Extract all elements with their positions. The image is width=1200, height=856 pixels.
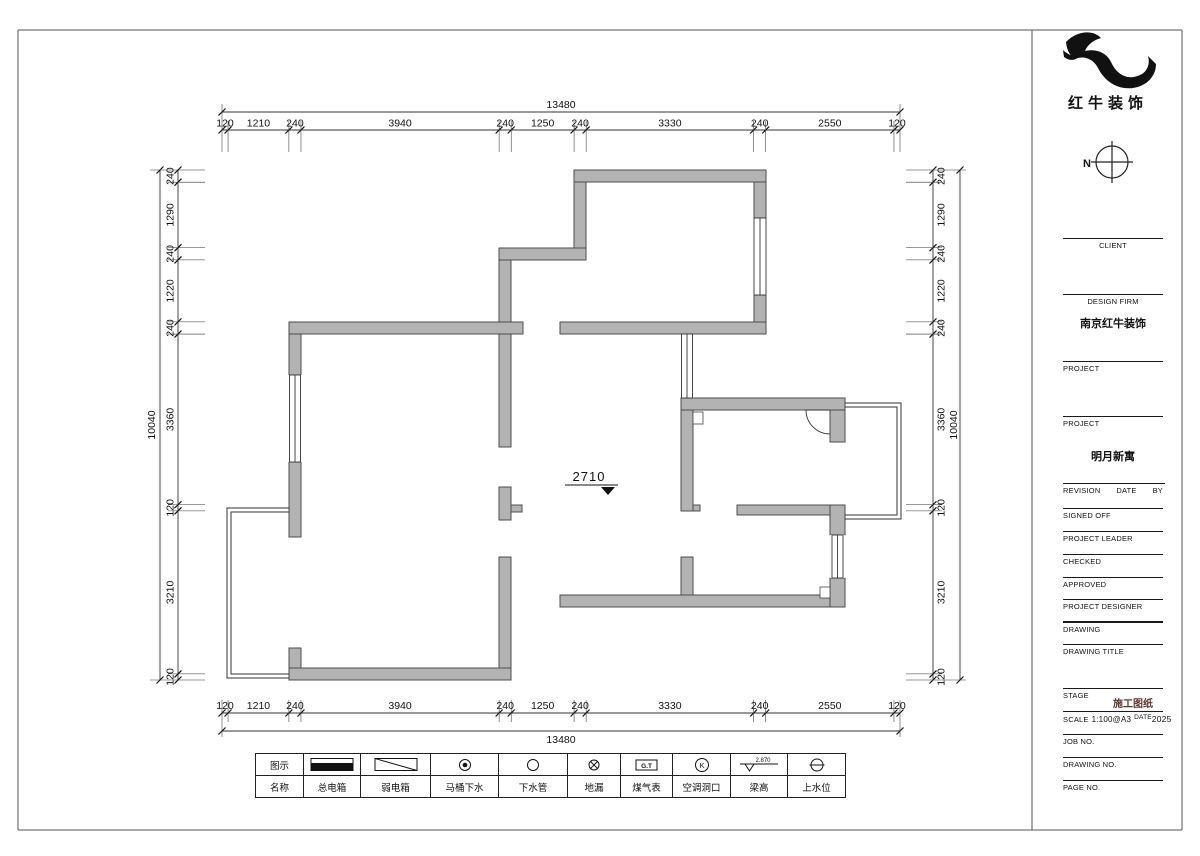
dim-total-left: 10040 [146,410,158,439]
wall-segment [289,322,523,334]
wall-segment [693,505,700,511]
titleblock-row-drawing: DRAWING [1063,621,1163,634]
dim-label: 240 [571,118,589,130]
scale-date-value: 2025 [1152,714,1172,724]
client-label: CLIENT [1099,241,1127,250]
svg-text:2.870: 2.870 [755,758,771,764]
dim-label: 120 [216,700,234,712]
balcony-window [227,508,289,678]
dim-label: 120 [165,668,177,686]
legend-item-name: 总电箱 [304,776,361,798]
stage-value: 施工图纸 [1063,695,1163,710]
dim-label: 240 [751,700,769,712]
legend-item-name: 马桶下水 [431,776,499,798]
wall-segment [560,595,845,607]
project-label-1: PROJECT [1063,364,1099,373]
dim-total-right: 10040 [948,410,960,439]
scale-label: SCALE [1063,715,1089,724]
north-label: N [1083,158,1091,170]
window [830,535,845,578]
drain-pipe-icon [525,757,541,773]
dim-label: 120 [216,118,234,130]
legend-row1-label: 图示 [256,754,304,776]
dim-label: 2550 [818,700,842,712]
scale-date-label: DATE [1134,714,1152,721]
wall-segment [511,505,522,512]
legend-item-name: 煤气表 [621,776,673,798]
dim-label: 120 [936,499,948,517]
dim-label: 240 [936,245,948,263]
ceiling-height-label: 2710 [573,469,606,484]
dim-label: 240 [165,319,177,337]
dim-label: 1220 [165,279,177,303]
project-designer-label: PROJECT DESIGNER [1063,602,1142,611]
job-no-label: JOB NO. [1063,737,1094,746]
legend-item-name: 上水位 [788,776,846,798]
wall-segment [499,487,511,520]
wall-segment [289,668,511,680]
dim-label: 240 [165,167,177,185]
dim-label: 240 [165,245,177,263]
approved-label: APPROVED [1063,580,1106,589]
floor-drain-icon [586,757,602,773]
wall-segment [830,410,845,442]
titleblock-row-scale: SCALE1:100@A3DATE2025 [1063,711,1163,724]
main-electric-box-icon [309,757,355,772]
wall-segment [754,182,766,218]
dim-label: 240 [751,118,769,130]
dim-label: 3360 [165,408,177,432]
dim-label: 120 [936,668,948,686]
design-firm-value: 南京红牛装饰 [1063,315,1163,331]
project-label-2: PROJECT [1063,419,1099,428]
titleblock-row-revision: REVISION DATE BY [1063,483,1165,495]
dim-label: 120 [888,700,906,712]
dim-label: 3330 [658,700,682,712]
titleblock-row-project-designer: PROJECT DESIGNER [1063,599,1163,611]
water-supply-icon [807,757,827,773]
balcony-window [845,403,901,519]
titleblock-row-signed-off: SIGNED OFF [1063,508,1163,520]
wall-segment [681,398,845,410]
dim-label: 1210 [247,700,271,712]
legend-item-name: 弱电箱 [361,776,431,798]
titleblock-row-client: CLIENT [1063,238,1163,250]
door-swing [806,410,830,434]
floor-plan-canvas: 红牛装饰 N [0,0,1200,856]
titleblock-row-drawing-no: DRAWING NO. [1063,757,1163,769]
legend-item-name: 梁高 [731,776,788,798]
ceiling-height-marker: 2710 [565,469,618,495]
dim-label: 1290 [936,203,948,227]
dim-label: 240 [936,319,948,337]
wall-segment [499,334,511,447]
dim-label: 3210 [936,581,948,605]
project-leader-label: PROJECT LEADER [1063,534,1133,543]
beam-height-icon: 2.870 [737,755,781,774]
titleblock-row-drawing-title: DRAWING TITLE [1063,644,1163,656]
wall-segment [830,505,845,535]
toilet-drain-icon [457,757,473,773]
ac-hole-icon: K [693,756,711,774]
brand-logo: 红牛装饰 [1063,32,1156,112]
sheet-frame [18,30,1182,830]
dim-label: 240 [936,167,948,185]
titleblock-row-design-firm: DESIGN FIRM [1063,294,1163,306]
wall-segment [560,322,766,334]
legend-item-name: 下水管 [499,776,568,798]
titleblock-row-project1: PROJECT [1063,361,1163,373]
wall-segment [499,557,511,668]
dim-label: 120 [888,118,906,130]
titleblock-row-checked: CHECKED [1063,554,1163,566]
drawing-no-label: DRAWING NO. [1063,760,1117,769]
brand-name: 红牛装饰 [1068,94,1148,112]
wall-segment [681,557,693,595]
wall-segment [681,410,693,511]
wall-segment [499,248,586,260]
dim-label: 3210 [165,581,177,605]
dim-label: 2550 [818,118,842,130]
gas-meter-icon: G.T [634,758,660,772]
dim-label: 1290 [165,203,177,227]
dim-total-top: 13480 [546,99,575,111]
scale-value: 1:100@A3 [1092,715,1132,724]
dim-label: 3330 [658,118,682,130]
wall-segment [289,462,301,537]
dim-label: 240 [286,700,304,712]
legend-table: 图示 [255,753,846,798]
wall-segment [830,578,845,607]
date-label: DATE [1116,486,1136,495]
project-value: 明月新寓 [1063,448,1163,464]
window [754,218,767,295]
dim-label: 1250 [531,118,555,130]
dim-label: 240 [496,700,514,712]
window [289,375,302,462]
wall-niche [693,412,703,424]
dim-label: 1220 [936,279,948,303]
design-firm-label: DESIGN FIRM [1087,297,1138,306]
titleblock-row-project2: PROJECT [1063,416,1163,428]
north-compass: N [1083,141,1133,183]
revision-label: REVISION [1063,486,1100,495]
page-no-label: PAGE NO. [1063,783,1100,792]
legend-name-row: 名称 总电箱 弱电箱 马桶下水 下水管 地漏 煤气表 空调洞口 梁高 上水位 [256,776,846,798]
dim-label: 3940 [388,118,412,130]
dim-label: 240 [286,118,304,130]
wall-segment [574,170,766,182]
checked-label: CHECKED [1063,557,1101,566]
dim-label: 120 [165,499,177,517]
dim-total-bottom: 13480 [546,734,575,746]
legend-item-name: 空调洞口 [673,776,731,798]
dim-label: 3360 [936,408,948,432]
dim-label: 3940 [388,700,412,712]
svg-text:K: K [699,760,704,769]
dim-label: 240 [571,700,589,712]
weak-electric-box-icon [373,757,419,772]
legend-symbol-row: 图示 [256,754,846,776]
floor-plan: 2710 [227,170,901,680]
titleblock-row-job-no: JOB NO. [1063,734,1163,746]
signed-off-label: SIGNED OFF [1063,511,1111,520]
dim-label: 1250 [531,700,555,712]
drawing-sheet: 红牛装饰 N [0,0,1200,856]
wall-niche [820,587,830,598]
wall-segment [737,505,830,515]
titleblock-row-page-no: PAGE NO. [1063,780,1163,792]
wall-segment [289,334,301,375]
legend-item-name: 地漏 [568,776,621,798]
by-label: BY [1153,486,1163,495]
dim-label: 1210 [247,118,271,130]
drawing-label: DRAWING [1063,625,1100,634]
svg-text:G.T: G.T [641,763,652,770]
drawing-title-label: DRAWING TITLE [1063,647,1124,656]
titleblock-row-project-leader: PROJECT LEADER [1063,531,1163,543]
titleblock-row-approved: APPROVED [1063,577,1163,589]
dim-label: 240 [496,118,514,130]
legend-row2-label: 名称 [256,776,304,798]
window [681,334,693,398]
